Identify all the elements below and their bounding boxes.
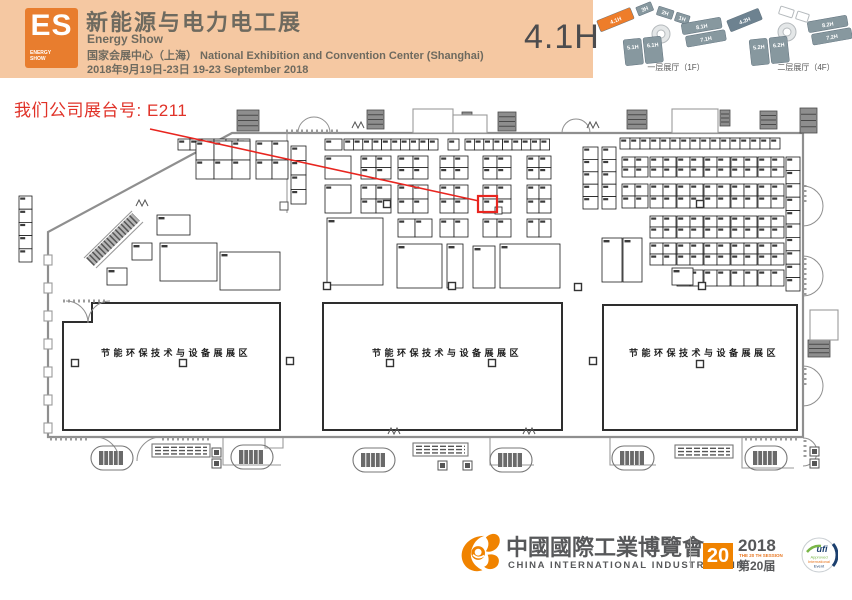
booth-cell [325, 185, 351, 213]
booth-number-mark [540, 187, 545, 189]
booth-number-mark [603, 161, 608, 163]
minimap-ghost-block-2 [796, 11, 810, 22]
booth-number-mark [362, 158, 367, 160]
booth-number-mark [399, 201, 404, 203]
booth-number-mark [20, 250, 25, 252]
logo-sub-text: ENERGY SHOW [30, 50, 51, 62]
service-room [672, 109, 718, 133]
booth-number-mark [179, 141, 184, 143]
booth-number-mark [377, 201, 382, 203]
booth-number-mark [751, 140, 756, 142]
booth-number-mark [484, 201, 489, 203]
booth-number-mark [455, 169, 460, 171]
booth-number-mark [787, 172, 792, 174]
booth-number-mark [772, 159, 777, 161]
booth-number-mark [257, 162, 262, 164]
booth-block [623, 238, 642, 282]
booth-number-mark [623, 186, 628, 188]
booth-number-mark [732, 169, 737, 171]
booth-number-mark [20, 224, 25, 226]
booth-number-mark [745, 218, 750, 220]
booth-number-mark [584, 198, 589, 200]
minimap-hall-2h: 2H [656, 6, 674, 20]
zone-hall-2 [323, 303, 562, 430]
minimap-ghost-block-1 [779, 6, 795, 18]
booth-number-mark [772, 169, 777, 171]
booth-number-mark [257, 143, 262, 145]
booth-number-mark [420, 141, 425, 143]
ciif-butterfly-logo [455, 526, 503, 580]
booth-number-mark [691, 140, 696, 142]
booth-number-mark [528, 221, 533, 223]
booth-number-mark [20, 211, 25, 213]
wall-notch [44, 283, 52, 293]
booth-number-mark [441, 187, 446, 189]
booth-number-mark [732, 272, 737, 274]
zone-label-2: 节能环保技术与设备展展区 [372, 347, 522, 358]
booth-number-mark [498, 201, 503, 203]
booth-number-mark [484, 221, 489, 223]
booth-number-mark [705, 198, 710, 200]
booth-number-mark [540, 169, 545, 171]
booth-number-mark [466, 141, 471, 143]
booth-number-mark [455, 187, 460, 189]
minimap-label-51h: 5.1H [627, 44, 639, 51]
booth-number-mark [678, 198, 683, 200]
booth-number-mark [745, 229, 750, 231]
booth-number-mark [476, 141, 481, 143]
booth-number-mark [498, 187, 503, 189]
booth-number-mark [691, 256, 696, 258]
booth-number-mark [651, 229, 656, 231]
booth-number-mark [759, 272, 764, 274]
pillar [324, 283, 331, 290]
wall-notch [44, 339, 52, 349]
booth-number-mark [678, 245, 683, 247]
ufi-sub3: Event [814, 564, 825, 569]
booth-number-mark [222, 254, 228, 256]
booth-number-mark [362, 169, 367, 171]
booth-number-mark [502, 246, 508, 248]
booth-number-mark [414, 169, 419, 171]
booth-number-mark [705, 245, 710, 247]
booth-number-mark [705, 272, 710, 274]
booth-number-mark [691, 159, 696, 161]
booth-number-mark [678, 218, 683, 220]
booth-number-mark [651, 256, 656, 258]
booth-number-mark [603, 186, 608, 188]
minimap-hall-42h: 4.2H [727, 8, 763, 32]
booth-number-mark [718, 256, 723, 258]
booth-number-mark [678, 159, 683, 161]
booth-number-mark [745, 245, 750, 247]
booth-number-mark [681, 140, 686, 142]
fair-title-cn: 中國國際工業博覽會 [506, 530, 704, 562]
booth-number-mark [691, 229, 696, 231]
booth-number-mark [603, 173, 608, 175]
booth-number-mark [678, 256, 683, 258]
booth-number-mark [392, 141, 397, 143]
booth-block [473, 246, 495, 288]
booth-number-mark [745, 159, 750, 161]
booth-number-mark [449, 141, 454, 143]
booth-number-mark [759, 256, 764, 258]
logo-show: SHOW [30, 56, 46, 62]
booth-number-mark [498, 169, 503, 171]
minimap-hall-41h: 4.1H [597, 7, 635, 32]
booth-number-mark [326, 187, 331, 189]
booth-number-mark [528, 158, 533, 160]
booth-number-mark [678, 169, 683, 171]
booth-number-mark [441, 158, 446, 160]
door-zigzag-mark [136, 200, 148, 206]
booth-number-mark [787, 159, 792, 161]
escalator-steps [361, 453, 385, 467]
booth-block [220, 252, 280, 290]
booth-number-mark [664, 256, 669, 258]
minimap-halls-82-72: 8.2H 7.2H [807, 15, 852, 46]
booth-number-mark [159, 217, 165, 219]
pillar [287, 358, 294, 365]
booth-number-mark [584, 173, 589, 175]
minimap-4f: 4.2H 8.2H 7.2H 5.2H 6.2H 二层展厅（4F） [727, 6, 852, 72]
booth-number-mark [787, 279, 792, 281]
wall-notch [44, 395, 52, 405]
booth-number-mark [745, 198, 750, 200]
booth-number-mark [215, 162, 220, 164]
booth-number-mark [292, 148, 297, 150]
booth-number-mark [718, 218, 723, 220]
booth-number-mark [787, 212, 792, 214]
booth-number-mark [455, 201, 460, 203]
booth-number-mark [718, 245, 723, 247]
service-room [453, 115, 487, 133]
wall-notch [44, 367, 52, 377]
facility-box-fill [440, 463, 445, 468]
booth-number-mark [449, 246, 455, 248]
booth-number-mark [414, 158, 419, 160]
booth-number-mark [745, 256, 750, 258]
service-room [413, 109, 453, 133]
booth-number-mark [718, 159, 723, 161]
booth-block [327, 218, 383, 285]
booth-block [447, 244, 463, 288]
booth-number-mark [513, 141, 518, 143]
service-room [810, 310, 838, 340]
hall-code: 4.1H [524, 18, 600, 57]
booth-number-mark [705, 169, 710, 171]
minimap-1f: 4.1H 3H 2H 1H 8.1H 7.1H 5.1H 6.1H 一层展厅（1 [597, 2, 727, 72]
date-line: 2018年9月19日-23日 19-23 September 2018 [87, 61, 308, 77]
booth-number-mark [772, 256, 777, 258]
booth-number-mark [651, 186, 656, 188]
booth-number-mark [494, 141, 499, 143]
booth-number-mark [759, 159, 764, 161]
booth-number-mark [273, 162, 278, 164]
booth-number-mark [134, 245, 140, 247]
session-badge: 20 [703, 543, 733, 569]
booth-number-mark [373, 141, 378, 143]
escalator-steps [239, 450, 263, 464]
booth-number-mark [691, 198, 696, 200]
booth-number-mark [329, 220, 335, 222]
booth-number-mark [701, 140, 706, 142]
zone-label-1: 节能环保技术与设备展展区 [101, 347, 251, 358]
facility-box-fill [214, 450, 219, 455]
booth-number-mark [691, 186, 696, 188]
zone-hall-1 [63, 303, 280, 430]
booth-number-mark [584, 161, 589, 163]
booth-number-mark [475, 248, 481, 250]
booth-number-mark [745, 186, 750, 188]
booth-number-mark [484, 169, 489, 171]
booth-number-mark [430, 141, 435, 143]
booth-number-mark [759, 229, 764, 231]
booth-number-mark [441, 221, 446, 223]
booth-number-mark [732, 256, 737, 258]
booth-number-mark [705, 186, 710, 188]
booth-number-mark [664, 186, 669, 188]
booth-number-mark [759, 169, 764, 171]
booth-number-mark [671, 140, 676, 142]
booth-number-mark [197, 143, 202, 145]
booth-number-mark [292, 177, 297, 179]
wall-notch [44, 255, 52, 265]
booth-number-mark [711, 140, 716, 142]
escalator-steps [99, 451, 123, 465]
minimap-1f-label: 一层展厅（1F） [647, 63, 704, 72]
booth-number-mark [498, 221, 503, 223]
booth-number-mark [787, 266, 792, 268]
booth-number-mark [772, 186, 777, 188]
booth-number-mark [399, 221, 404, 223]
booth-number-mark [718, 272, 723, 274]
booth-block [602, 238, 622, 282]
booth-number-mark [705, 229, 710, 231]
booth-number-mark [678, 229, 683, 231]
booth-number-mark [759, 218, 764, 220]
minimap-label-61h: 6.1H [647, 42, 659, 49]
header-band: ES ENERGY SHOW 新能源与电力电工展 Energy Show 国家会… [0, 0, 593, 78]
booth-number-mark [759, 245, 764, 247]
booth-number-mark [455, 158, 460, 160]
booth-number-mark [20, 198, 25, 200]
booth-number-mark [664, 229, 669, 231]
booth-number-mark [718, 186, 723, 188]
zone-halls: 节能环保技术与设备展展区 节能环保技术与设备展展区 节能环保技术与设备展展区 [63, 303, 797, 430]
booth-number-mark [787, 226, 792, 228]
booth-number-mark [621, 140, 626, 142]
booth-number-mark [787, 185, 792, 187]
minimap-halls-51-61: 5.1H 6.1H [623, 36, 664, 66]
facility-box-fill [812, 449, 817, 454]
booth-number-mark [191, 141, 196, 143]
minimap-4f-label: 二层展厅（4F） [777, 63, 834, 72]
booth-number-mark [718, 229, 723, 231]
inner-wall-door [280, 202, 288, 210]
booth-number-mark [326, 141, 331, 143]
minimap-label-62h: 6.2H [773, 42, 785, 49]
booth-number-mark [759, 186, 764, 188]
booth-block [500, 244, 560, 288]
booth-number-mark [455, 221, 460, 223]
booth-number-mark [233, 143, 238, 145]
booth-number-mark [402, 141, 407, 143]
booth-number-mark [651, 169, 656, 171]
booth-number-mark [691, 245, 696, 247]
pillar [387, 360, 394, 367]
pillar [384, 201, 391, 208]
minimap-halls-52-62: 5.2H 6.2H [749, 36, 790, 66]
booth-number-mark [759, 198, 764, 200]
booth-number-mark [636, 198, 641, 200]
booth-number-mark [414, 201, 419, 203]
booth-number-mark [732, 229, 737, 231]
booth-number-mark [484, 187, 489, 189]
booth-number-mark [636, 186, 641, 188]
booth-number-mark [636, 159, 641, 161]
session-cn: 第20届 [738, 557, 775, 574]
footer-band: 中國國際工業博覽會 CHINA INTERNATIONAL INDUSTRY F… [0, 524, 852, 584]
booth-number-mark [761, 140, 766, 142]
booth-number-mark [484, 158, 489, 160]
booth-number-mark [732, 186, 737, 188]
booth-number-mark [383, 141, 388, 143]
booth-number-mark [651, 159, 656, 161]
booth-number-mark [377, 169, 382, 171]
booth-number-mark [362, 201, 367, 203]
pillar [575, 284, 582, 291]
booth-number-mark [377, 187, 382, 189]
escalator-steps [753, 451, 777, 465]
booth-number-mark [541, 141, 546, 143]
booth-number-mark [625, 240, 631, 242]
facility-box-fill [812, 461, 817, 466]
booth-number-mark [364, 141, 369, 143]
footer-divider [690, 536, 691, 568]
booth-number-mark [745, 272, 750, 274]
booth-number-mark [399, 169, 404, 171]
booth-number-mark [532, 141, 537, 143]
booth-number-mark [772, 245, 777, 247]
booth-number-mark [399, 246, 405, 248]
booth-number-mark [504, 141, 509, 143]
booth-number-mark [528, 201, 533, 203]
booth-number-mark [678, 186, 683, 188]
booth-number-mark [345, 141, 350, 143]
booth-number-mark [623, 169, 628, 171]
booth-number-mark [377, 158, 382, 160]
booth-number-mark [233, 162, 238, 164]
pillar [699, 283, 706, 290]
booth-number-mark [355, 141, 360, 143]
booth-number-mark [691, 218, 696, 220]
door-swing-arc [803, 366, 823, 406]
show-title-en: Energy Show [87, 32, 163, 46]
minimap-core-hole-4f [783, 28, 791, 36]
booth-number-mark [528, 187, 533, 189]
booth-number-mark [197, 162, 202, 164]
booth-number-mark [651, 140, 656, 142]
booth-number-mark [399, 158, 404, 160]
pillar [489, 360, 496, 367]
booth-number-mark [691, 169, 696, 171]
booth-block [160, 243, 217, 281]
logo-es-text: ES [25, 9, 78, 43]
booth-number-mark [584, 186, 589, 188]
booth-number-mark [772, 272, 777, 274]
booth-number-mark [623, 198, 628, 200]
booth-number-mark [732, 198, 737, 200]
booth-number-mark [523, 141, 528, 143]
booth-number-mark [528, 169, 533, 171]
booth-number-mark [732, 218, 737, 220]
booth-number-mark [771, 140, 776, 142]
booth-number-mark [664, 245, 669, 247]
booth-number-mark [787, 239, 792, 241]
booth-number-mark [651, 218, 656, 220]
booth-number-mark [416, 221, 421, 223]
booth-number-mark [705, 159, 710, 161]
booth-number-mark [651, 245, 656, 247]
booth-number-mark [399, 187, 404, 189]
escalator-steps [620, 451, 644, 465]
escalator-steps [498, 453, 522, 467]
pillar [180, 360, 187, 367]
booth-number-mark [540, 221, 545, 223]
booth-number-mark [787, 199, 792, 201]
booth-number-mark [674, 270, 680, 272]
booth-number-mark [745, 169, 750, 171]
booth-number-mark [498, 158, 503, 160]
pillar [697, 201, 704, 208]
booth-number-mark [604, 240, 610, 242]
booth-number-mark [732, 159, 737, 161]
pillar [449, 283, 456, 290]
booth-number-mark [741, 140, 746, 142]
booth-number-mark [603, 198, 608, 200]
booth-number-mark [109, 270, 115, 272]
booth-number-mark [411, 141, 416, 143]
minimap-label-52h: 5.2H [753, 44, 765, 51]
booth-number-mark [721, 140, 726, 142]
booth-number-mark [584, 149, 589, 151]
energy-show-logo: ES ENERGY SHOW [25, 8, 78, 68]
ufi-badge: ufi Approved International Event [800, 536, 838, 574]
booth-number-mark [772, 218, 777, 220]
booth-number-mark [292, 191, 297, 193]
booth-number-mark [772, 198, 777, 200]
booth-number-mark [162, 245, 168, 247]
booth-number-mark [540, 201, 545, 203]
wall-notch [44, 311, 52, 321]
booth-number-mark [485, 141, 490, 143]
door-zigzag-mark [352, 122, 364, 128]
booth-number-mark [661, 140, 666, 142]
venue-minimaps: 4.1H 3H 2H 1H 8.1H 7.1H 5.1H 6.1H 一层展厅（1 [595, 0, 852, 80]
facility-box-fill [465, 463, 470, 468]
pillar [72, 360, 79, 367]
booth-number-mark [705, 256, 710, 258]
booth-number-mark [441, 169, 446, 171]
booth-number-mark [664, 169, 669, 171]
pillar [590, 358, 597, 365]
booth-number-mark [20, 237, 25, 239]
facility-box-fill [214, 461, 219, 466]
booth-number-mark [362, 187, 367, 189]
booth-number-mark [603, 149, 608, 151]
booth-number-mark [326, 158, 331, 160]
